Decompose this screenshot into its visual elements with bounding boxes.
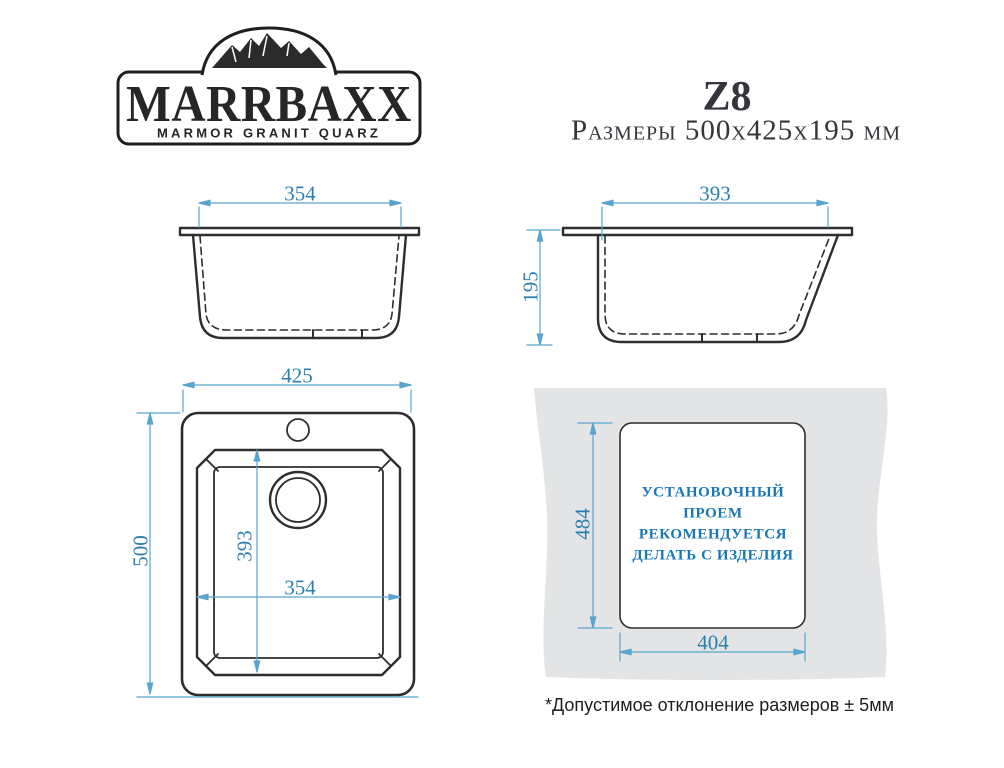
cutout-note-line-1: УСТАНОВОЧНЫЙ bbox=[642, 486, 785, 501]
top-bowl-rim bbox=[197, 450, 400, 675]
drain-inner-ring bbox=[276, 478, 320, 522]
brand-name: MARRBAXX bbox=[126, 78, 412, 130]
dim-top-500 bbox=[137, 413, 418, 697]
front-rim bbox=[180, 228, 419, 235]
drain-outer-ring bbox=[270, 472, 326, 528]
dim-label-top-354: 354 bbox=[284, 578, 316, 599]
dim-label-side-393: 393 bbox=[699, 184, 731, 205]
top-bowl-bottom bbox=[214, 467, 383, 658]
top-view-drawing bbox=[182, 413, 414, 695]
side-view-drawing bbox=[563, 228, 852, 342]
dim-label-front-354: 354 bbox=[284, 184, 316, 205]
front-view-drawing bbox=[180, 228, 419, 338]
front-bowl-inner-dashed bbox=[200, 236, 399, 330]
drawing-sheet: MARRBAXX MARMOR GRANIT QUARZ Z8 Размеры … bbox=[0, 0, 1004, 768]
side-bowl-outline bbox=[598, 235, 838, 342]
overall-size-label: Размеры 500х425х195 мм bbox=[571, 117, 901, 146]
tolerance-footnote: *Допустимое отклонение размеров ± 5мм bbox=[545, 696, 894, 714]
cutout-note-line-2: ПРОЕМ bbox=[683, 507, 743, 522]
dim-label-cutout-484: 484 bbox=[573, 508, 594, 540]
dim-label-top-500: 500 bbox=[131, 535, 152, 567]
dim-label-cutout-404: 404 bbox=[697, 633, 729, 654]
faucet-hole bbox=[287, 419, 309, 441]
cutout-note-line-3: РЕКОМЕНДУЕТСЯ bbox=[639, 528, 787, 543]
model-code: Z8 bbox=[702, 76, 751, 118]
brand-tagline: MARMOR GRANIT QUARZ bbox=[157, 127, 381, 140]
top-bowl-corner-chamfers bbox=[206, 459, 391, 666]
front-bowl-outline bbox=[193, 235, 406, 338]
dim-label-side-195: 195 bbox=[521, 271, 542, 303]
side-rim bbox=[563, 228, 852, 235]
cutout-note-line-4: ДЕЛАТЬ С ИЗДЕЛИЯ bbox=[632, 549, 793, 564]
cutout-opening bbox=[620, 423, 805, 628]
dim-label-top-425: 425 bbox=[281, 366, 313, 387]
top-outer-edge bbox=[182, 413, 414, 695]
dim-label-top-393: 393 bbox=[235, 530, 256, 562]
side-bowl-inner-dashed bbox=[605, 236, 830, 334]
